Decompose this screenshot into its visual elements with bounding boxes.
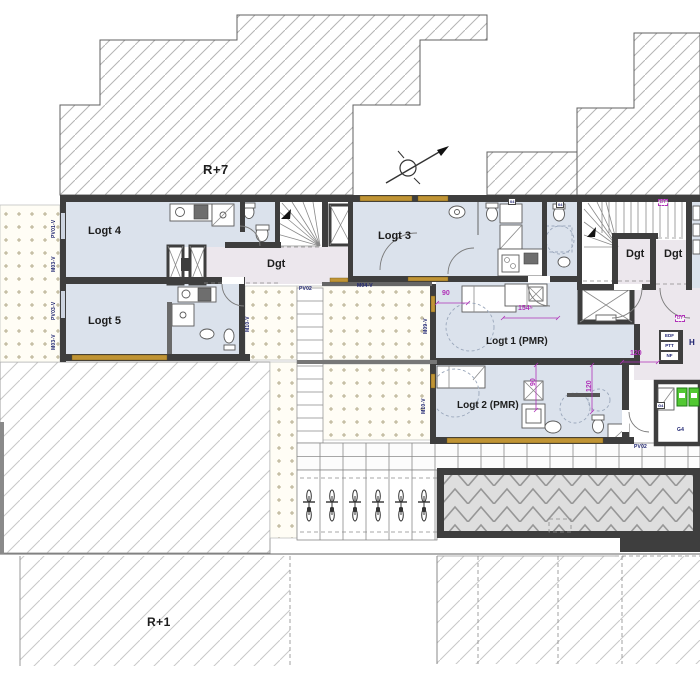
dimension-120-b: 120 bbox=[630, 350, 642, 357]
wall-code-m09v: M09-V bbox=[424, 318, 429, 334]
level-label-upper: R+7 bbox=[203, 163, 229, 176]
door-tag-2: DT bbox=[675, 315, 685, 322]
wall-code-pv01v: PV01-V bbox=[52, 220, 57, 238]
wall-code-m03v-a: M03-V bbox=[52, 256, 57, 272]
bike-parking bbox=[297, 470, 437, 540]
room-label-logt3: Logt 3 bbox=[378, 231, 411, 242]
wall-code-m04v: M04-V bbox=[357, 284, 373, 289]
bin-storage-room bbox=[656, 382, 700, 444]
floor-plan: R+7 R+1 Logt 4 Logt 5 Logt 3 Logt 1 (PMR… bbox=[0, 0, 700, 700]
dimension-154: 154⁵ bbox=[518, 305, 533, 312]
wall-code-pv02-a: PV02 bbox=[299, 287, 312, 292]
wall-code-m03v-b: M03-V bbox=[52, 334, 57, 350]
corridor-label-2: Dgt bbox=[626, 249, 644, 260]
wall-code-m10v-a: M10-V bbox=[246, 316, 251, 332]
dimension-90-b: 90 bbox=[530, 378, 537, 386]
hall-label: H bbox=[689, 339, 695, 347]
dimension-90-a: 90 bbox=[442, 290, 450, 297]
room-label-logt5: Logt 5 bbox=[88, 316, 121, 327]
wall-code-m10v-b: M10-V bbox=[422, 398, 427, 414]
corridor-label-3: Dgt bbox=[664, 249, 682, 260]
floor-plan-drawing bbox=[0, 0, 700, 700]
door-tag-1: DT bbox=[658, 199, 668, 206]
room-label-logt1: Logt 1 (PMR) bbox=[486, 337, 548, 347]
level-label-lower: R+1 bbox=[147, 616, 171, 628]
door-code-04-b: 04 bbox=[556, 201, 564, 208]
bin-code-g4-b: G4 bbox=[677, 428, 684, 433]
room-label-logt2: Logt 2 (PMR) bbox=[457, 401, 519, 411]
dimension-120-a: 120 bbox=[586, 380, 593, 392]
corridor-label-1: Dgt bbox=[267, 259, 285, 270]
pergola-strip bbox=[297, 288, 323, 443]
utility-box-nf: NF bbox=[660, 351, 679, 361]
bin-code-g4-a: G4 bbox=[656, 402, 665, 409]
wall-code-pv02-b: PV02 bbox=[634, 445, 647, 450]
wall-code-pv03v: PV03-V bbox=[52, 302, 57, 320]
utility-box-ptt: PTT bbox=[660, 341, 679, 351]
elevator bbox=[580, 288, 632, 322]
room-label-logt4: Logt 4 bbox=[88, 226, 121, 237]
door-code-04-a: 04 bbox=[508, 198, 516, 205]
utility-box-edf: EDF bbox=[660, 331, 679, 341]
